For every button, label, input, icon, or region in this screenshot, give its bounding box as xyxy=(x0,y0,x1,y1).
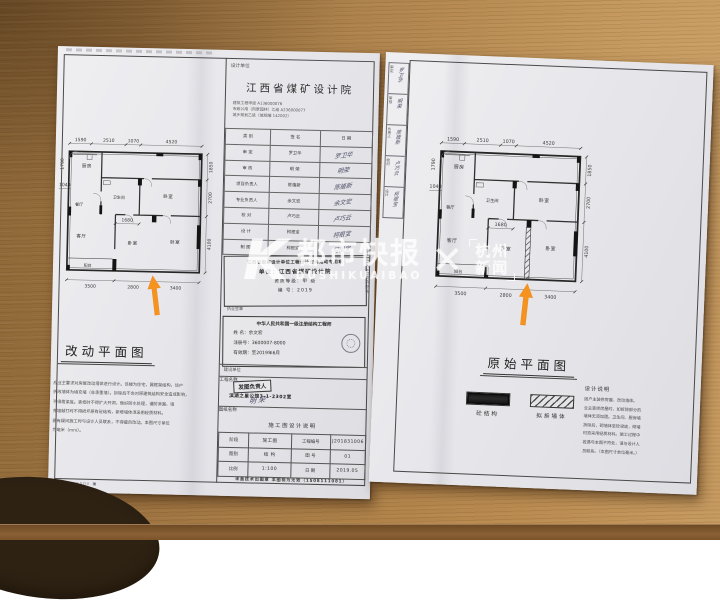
handwritten-signature: 余文宏 xyxy=(333,196,352,208)
room-bed-mid: 卧室 xyxy=(128,239,138,246)
room-bed-right: 卧室 xyxy=(545,245,556,252)
issue-stamp: 发图负责人 xyxy=(233,380,272,394)
room-bath: 卫生间 xyxy=(113,195,125,200)
room-balcony: 阳台 xyxy=(454,268,463,274)
room-bed-mid: 卧室 xyxy=(500,245,511,252)
dim-4100: 4100 xyxy=(584,245,590,257)
handwritten-signature: 明 荣 xyxy=(248,395,265,407)
cat: 专业负责人 xyxy=(224,191,269,208)
room-kitchen: 厨房 xyxy=(454,163,465,170)
strip-cell: 审核 明荣 xyxy=(387,94,407,126)
room-living: 客厅 xyxy=(447,237,458,244)
handwritten-signature: 明荣 xyxy=(337,165,350,176)
modified-floor-plan: 1590 2510 1070 4520 1850 2700 4100 3500 … xyxy=(54,130,226,334)
room-bed-right: 卧室 xyxy=(170,238,180,245)
engineer-stamp: 中华人民共和国一级注册结构工程师 姓 名：余文宏 注册号：3600007-800… xyxy=(222,316,365,368)
legend-label: 砼结构 xyxy=(476,409,499,418)
name: 余文宏 xyxy=(269,193,319,210)
room-dining: 餐厅 xyxy=(446,204,455,210)
room-balcony: 阳台 xyxy=(84,263,92,268)
strip-label: 审定 xyxy=(390,65,395,73)
k: 工程编号 xyxy=(291,434,331,449)
dim-1790: 1790 xyxy=(431,158,437,170)
dim-2800: 2800 xyxy=(127,284,139,290)
strip-label: 审核 xyxy=(389,96,394,104)
k: 阶段 xyxy=(218,432,249,447)
signature-table: 类 别 签 名 日 期 审 定 罗卫华 罗卫华 审 核 明 荣 明荣 项目负责人… xyxy=(222,128,373,259)
name: 罗卫华 xyxy=(270,145,320,162)
right-drawing-sheet: 审定 罗卫华 审核 明荣 负责人 陈植新 校对 卢巧云 设计 柯根宝 xyxy=(369,52,714,495)
handwritten-signature: 卢巧云 xyxy=(333,212,352,224)
col-signature: 签 名 xyxy=(270,129,320,146)
name: 陈植新 xyxy=(269,177,319,194)
concrete-swatch-icon xyxy=(466,392,510,407)
title-block: 设计单位 江西省煤矿设计院 建筑工程甲级 A136000076 市政公用（风景园… xyxy=(216,58,375,486)
room-kitchen: 厨房 xyxy=(82,162,92,169)
cat: 项目负责人 xyxy=(224,176,269,193)
stamp-line: 有效期：至2019年6月 xyxy=(223,349,364,360)
sig: 卢巧云 xyxy=(318,209,371,226)
dim-2700: 2700 xyxy=(208,192,214,204)
k: 图 号 xyxy=(291,448,331,463)
v: 结 构 xyxy=(248,448,290,464)
strip-cell: 审定 罗卫华 xyxy=(388,63,408,95)
dim-3500: 3500 xyxy=(84,283,96,289)
dim-3400: 3400 xyxy=(544,294,556,300)
v: 01 xyxy=(330,449,366,464)
info-table: 阶段 施工图 工程编号 J201831006 图别 结 构 图 号 01 比例 … xyxy=(217,432,366,480)
strip-cell: 设计 柯根宝 xyxy=(383,187,403,218)
handwritten-signature: 罗卫华 xyxy=(334,149,353,161)
cat: 校 对 xyxy=(224,207,269,224)
dim-2700: 2700 xyxy=(586,197,592,209)
strip-cell: 校对 卢巧云 xyxy=(385,156,405,188)
top-edge-marks xyxy=(66,48,216,54)
dim-4100: 4100 xyxy=(207,238,213,250)
hatch-swatch-icon xyxy=(530,394,574,409)
dim-3500: 3500 xyxy=(454,291,466,297)
dim-1590: 1590 xyxy=(75,137,87,143)
sheet-label: 图纸名称 xyxy=(219,407,367,416)
name: 柯根宝 xyxy=(268,240,318,257)
cat: 审 核 xyxy=(225,160,270,177)
room-dining: 餐厅 xyxy=(75,202,83,207)
dim-1590: 1590 xyxy=(447,137,459,143)
demolition-wall xyxy=(524,227,531,279)
plan-title-modified: 改动平面图 xyxy=(61,340,152,364)
stamp-line: 编 号：2019 xyxy=(225,286,366,296)
dim-4520: 4520 xyxy=(542,140,554,146)
dim-2510: 2510 xyxy=(476,138,488,144)
dim-1070: 1070 xyxy=(128,138,140,144)
strip-signature: 柯根宝 xyxy=(391,191,400,207)
cat: 制 图 xyxy=(223,239,268,256)
qualification-stamp: 江西省勘察设计单位工程设计咨询活动专用章 单位：江西省煤矿设计院 资质等级：甲 … xyxy=(224,255,367,307)
dim-2800: 2800 xyxy=(499,293,511,299)
handwritten-signature: 柯根宝 xyxy=(333,228,352,240)
sheet-name: 施工图设计说明 xyxy=(218,420,366,431)
k: 日 期 xyxy=(290,463,330,478)
handwritten-signature: 陈植新 xyxy=(334,180,353,192)
project-box: 工程名称 滨湖之星公馆3-1-2302室 发图负责人 明 荣 xyxy=(219,376,368,410)
dim-2510: 2510 xyxy=(103,138,115,144)
walls xyxy=(436,151,581,281)
sig: 余文宏 xyxy=(318,194,371,211)
dim-3400: 3400 xyxy=(170,285,182,291)
design-notes: 设计说明 因户主装修房屋，改动墙体。 业主装修房屋时，如拆除部分的 墙体无须加固… xyxy=(582,384,695,460)
general-notes: 应业主要求对房屋改动墙体进行设计。该楼为住宅，属框架结构，该户 拆改墙体为填充墙… xyxy=(52,378,225,438)
k: 图别 xyxy=(218,447,249,462)
strip-label: 设计 xyxy=(385,189,390,197)
left-drawing-sheet: 1590 2510 1070 4520 1850 2700 4100 3500 … xyxy=(48,46,380,499)
wooden-desk-background: 1590 2510 1070 4520 1850 2700 4100 3500 … xyxy=(0,0,720,540)
col-date: 日 期 xyxy=(320,130,373,147)
room-living: 客厅 xyxy=(76,232,86,239)
walls xyxy=(67,151,203,273)
room-bath: 卫生间 xyxy=(486,197,499,203)
dim-1790: 1790 xyxy=(60,158,66,170)
round-seal-icon xyxy=(341,334,360,353)
dim-1070: 1070 xyxy=(502,139,514,145)
v: 施工图 xyxy=(249,433,291,449)
col-category: 类 别 xyxy=(225,128,270,145)
strip-signature: 罗卫华 xyxy=(396,67,405,83)
legend-item-concrete: 砼结构 xyxy=(465,392,510,419)
design-unit-label: 设计单位 xyxy=(231,62,250,69)
dim-1680: 1680 xyxy=(121,217,133,223)
sig: 陈植新 xyxy=(319,178,372,195)
seal-note: 执业签章 xyxy=(227,306,369,315)
dim-1680: 1680 xyxy=(494,222,506,228)
name: 明 荣 xyxy=(270,161,320,178)
strip-signature: 陈植新 xyxy=(394,129,403,145)
cat: 设 计 xyxy=(223,223,268,240)
sig: 柯根宝 xyxy=(318,225,371,242)
dim-1850: 1850 xyxy=(208,161,214,173)
v: 1:100 xyxy=(248,462,290,478)
room-bed-top: 卧室 xyxy=(539,197,550,204)
orange-arrow xyxy=(146,275,163,316)
handwritten-signature: 柯根宝 xyxy=(332,244,351,256)
wall-legend: 砼结构 拟拆墙体 xyxy=(465,392,574,421)
original-floor-plan: 1590 2510 1070 4520 1850 2700 4100 3500 … xyxy=(421,130,607,345)
strip-signature: 明荣 xyxy=(395,98,403,109)
v: 2019.05 xyxy=(330,464,366,479)
room-bed-top: 卧室 xyxy=(163,193,173,200)
strip-label: 负责人 xyxy=(388,127,393,138)
name: 卢巧云 xyxy=(269,208,319,225)
dim-1850: 1850 xyxy=(587,164,593,176)
strip-label: 校对 xyxy=(386,158,391,166)
sig: 明荣 xyxy=(319,162,372,179)
name: 柯根宝 xyxy=(268,224,318,241)
v: J201831006 xyxy=(330,435,366,450)
cat: 审 定 xyxy=(225,144,270,161)
strip-cell: 负责人 陈植新 xyxy=(386,125,406,157)
dim-4520: 4520 xyxy=(166,139,178,145)
sig: 罗卫华 xyxy=(320,146,373,163)
strip-signature: 卢巧云 xyxy=(392,160,401,176)
k: 比例 xyxy=(218,461,249,476)
credential-lines: 建筑工程甲级 A136000076 市政公用（风景园林）乙级 A23600007… xyxy=(225,100,373,122)
client-label: 建设单位 xyxy=(224,367,241,373)
legend-item-demolish: 拟拆墙体 xyxy=(529,394,574,421)
design-unit-name: 江西省煤矿设计院 xyxy=(226,80,374,98)
legend-label: 拟拆墙体 xyxy=(536,411,567,420)
plan-title-original: 原始平面图 xyxy=(483,352,574,378)
desk-front-edge xyxy=(0,524,720,540)
